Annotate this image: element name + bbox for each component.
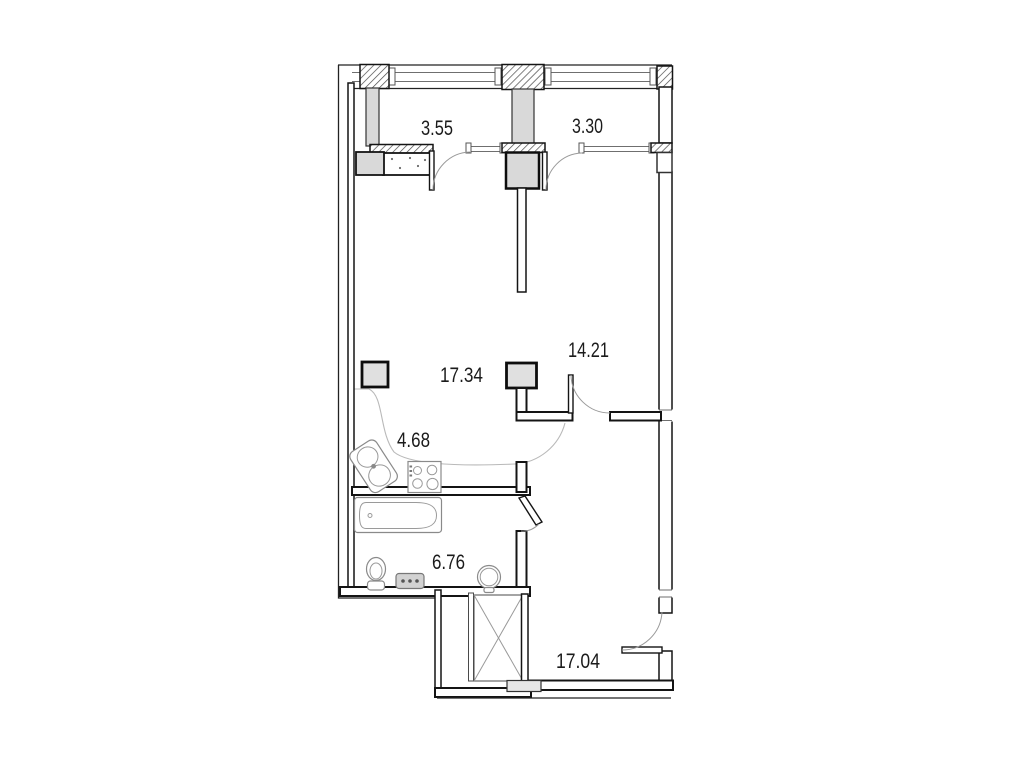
threshold-block (507, 681, 541, 692)
stove-knob (410, 475, 413, 477)
bedroom-door-swing-arc (571, 375, 610, 413)
glazing-jamb-tick (495, 68, 501, 85)
pier-column-left (366, 88, 379, 146)
bedroom-wall-left (517, 412, 573, 421)
facade-pier-left (360, 65, 389, 89)
stove-knob (410, 470, 413, 472)
center-pier-block (506, 153, 539, 189)
windowsill-cabinet (383, 153, 430, 175)
floor-plan: 3.55 3.30 17.34 14.21 4.68 6.76 17.04 (0, 0, 1024, 768)
entrance-door-swing-arc (622, 612, 662, 650)
window-jamb-tick (466, 143, 471, 153)
facade-pier-center (502, 65, 544, 90)
room-area-label-entrance-room: 17.04 (556, 650, 600, 673)
balcony-door-left-swing-arc (433, 152, 470, 190)
fixtures (348, 438, 501, 593)
right-wall-break (658, 590, 673, 598)
left-wall (348, 83, 354, 590)
dot (399, 167, 401, 169)
column-center (507, 363, 537, 388)
balcony-door-right-swing-arc (546, 153, 582, 190)
center-pier-cap (502, 143, 545, 153)
basin-bowl (478, 566, 501, 589)
right-sill-block (657, 153, 672, 173)
dot (391, 158, 393, 160)
bottom-wall-entrance-room (527, 681, 673, 691)
room-area-label-bedroom: 14.21 (568, 339, 609, 362)
right-wall-middle (659, 172, 672, 613)
dot (417, 165, 419, 167)
shaft-left-wall (469, 593, 474, 681)
bedroom-door-leaf (569, 375, 574, 413)
room-area-label-balcony-right: 3.30 (572, 115, 603, 138)
bathtub (355, 498, 442, 533)
stove-knob (410, 466, 413, 468)
washing-machine (396, 574, 424, 589)
balcony-window-right (581, 147, 653, 152)
toilet-base (368, 581, 385, 590)
bath-door-lower-wall (517, 531, 527, 591)
wall-break-gap (658, 590, 673, 598)
basin-base (484, 588, 494, 593)
central-partition-wall (518, 188, 527, 292)
shaft-right-wall (522, 594, 529, 682)
glazing-jamb-tick (389, 68, 395, 85)
corner-wall-block (356, 152, 384, 175)
toilet-bowl (367, 558, 386, 581)
washer-dot (401, 579, 405, 583)
bedroom-wall-right (610, 412, 661, 421)
room-area-label-living-room: 17.34 (440, 364, 483, 387)
room-area-label-balcony-left: 3.55 (421, 117, 453, 140)
windowsill-hatch-right (651, 143, 672, 153)
dot (409, 157, 411, 159)
glazing-jamb-tick (545, 68, 551, 85)
bathroom-door-leaf (519, 496, 542, 525)
room-area-label-kitchen-niche: 4.68 (397, 429, 430, 452)
room-area-label-bathroom: 6.76 (432, 551, 465, 574)
toilet (367, 558, 386, 591)
ventilation-shaft (469, 593, 542, 692)
balcony-band (356, 143, 672, 190)
right-wall-upper (659, 87, 672, 143)
washer-dot (415, 579, 419, 583)
exterior-step-wall (435, 590, 441, 695)
window-jamb-tick (579, 143, 584, 153)
glazing-jamb-tick (650, 68, 656, 85)
facade-pier-right (657, 66, 673, 89)
column-wall-vertical (517, 388, 527, 414)
stove (408, 462, 441, 493)
bath-door-upper-jamb-wall (517, 462, 527, 492)
washer-dot (408, 579, 412, 583)
dot (424, 159, 426, 161)
column-left (362, 362, 388, 387)
balcony-window-left (468, 147, 505, 152)
pier-column-center (512, 89, 534, 145)
